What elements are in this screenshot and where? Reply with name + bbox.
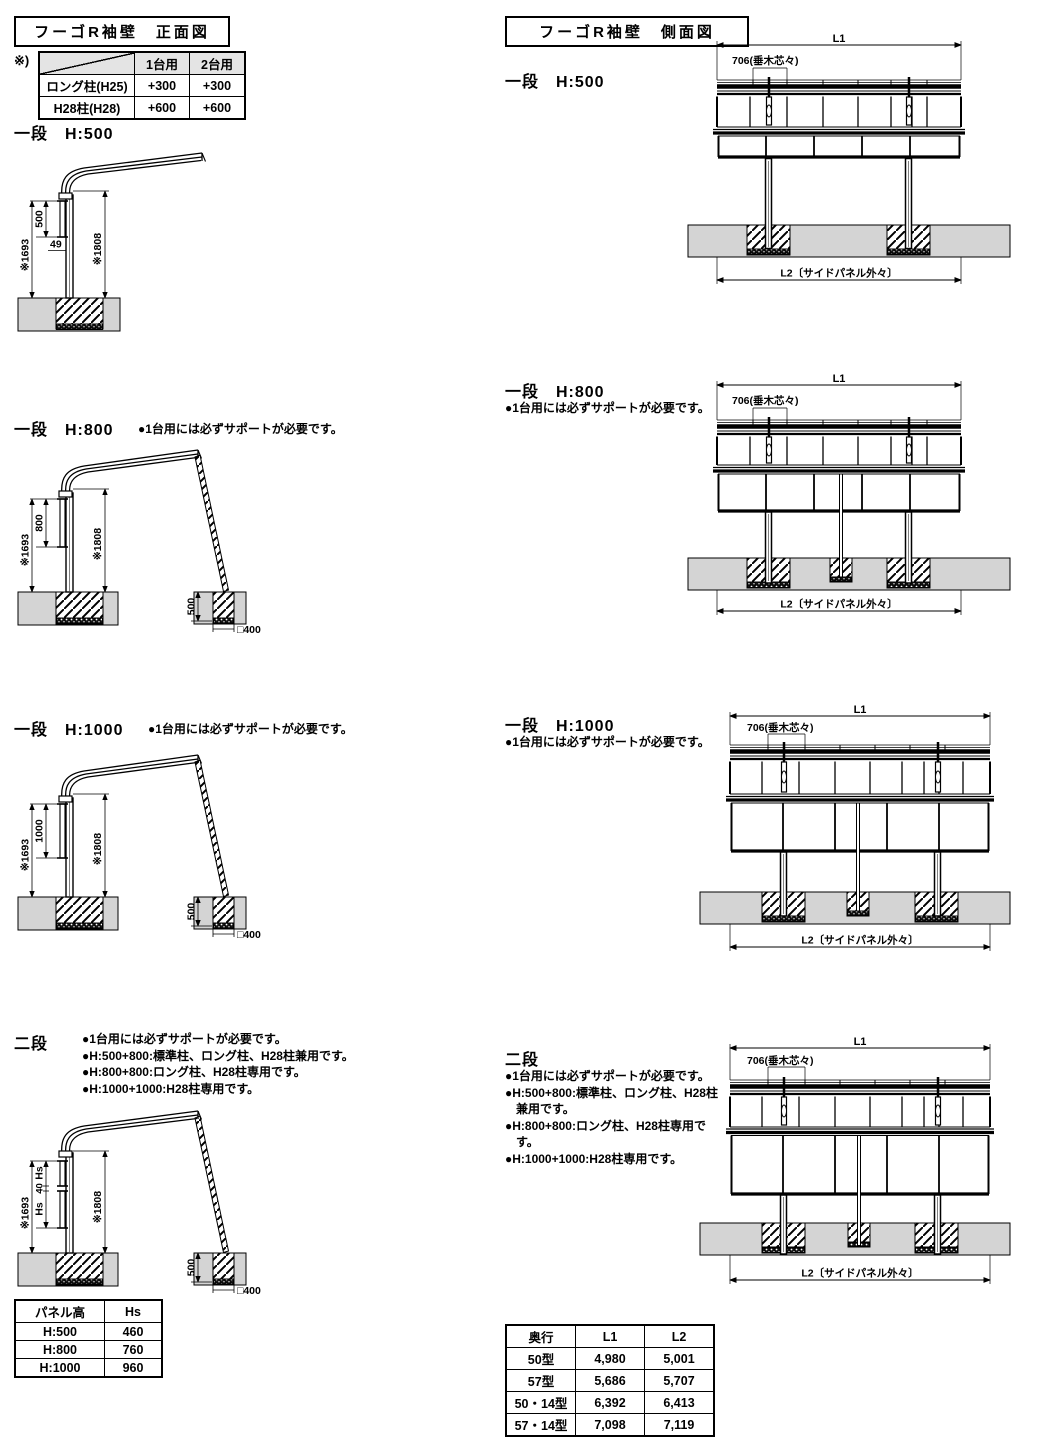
- gravel: [748, 249, 790, 255]
- spec-col-1car: 1台用: [135, 52, 190, 75]
- roof: [62, 1111, 202, 1155]
- gravel: [916, 916, 958, 922]
- gravel: [763, 916, 805, 922]
- side-panel-band: [718, 136, 960, 157]
- table-row: 50型 4,980 5,001: [506, 1348, 714, 1370]
- gravel: [214, 1279, 234, 1285]
- foundation-hatch: [56, 298, 103, 324]
- spec-cell: +300: [190, 75, 246, 97]
- gravel: [57, 1279, 103, 1285]
- spec-diagonal-cell: [39, 52, 135, 75]
- depth-size-table: 奥行 L1 L2 50型 4,980 5,001 57型 5,686 5,707…: [505, 1324, 715, 1437]
- side-h500-heading: 一段 H:500: [505, 68, 605, 92]
- rafter-pitch-dimension: 706(垂木芯々): [732, 54, 799, 80]
- side-view-h800-diagram: L1 706(垂木芯々): [680, 375, 1044, 627]
- note-line: ●H:800+800:ロング柱、H28柱専用です。: [82, 1064, 354, 1081]
- spec-col-2car: 2台用: [190, 52, 246, 75]
- panel-height-table: パネル高 Hs H:500 460 H:800 760 H:1000 960: [14, 1299, 163, 1378]
- roof-band: [717, 417, 961, 437]
- cell: 760: [105, 1341, 163, 1359]
- side-2dan-heading: 二段: [505, 1046, 539, 1070]
- roof-frame-band: [717, 97, 961, 128]
- dim-1693: ※1693: [20, 839, 32, 871]
- side-view-h500-diagram: L1 706(垂木芯々): [680, 33, 1044, 303]
- note-line: ●H:1000+1000:H28柱専用です。: [82, 1081, 354, 1098]
- dim-1808: ※1808: [92, 1191, 104, 1223]
- ground: [688, 558, 1010, 590]
- gravel: [57, 618, 103, 624]
- cell: 4,980: [576, 1348, 645, 1370]
- cell: 6,392: [576, 1392, 645, 1414]
- gravel: [848, 911, 869, 916]
- cell: 57・14型: [506, 1414, 576, 1437]
- note-line: ●H:500+800:標準柱、ロング柱、H28柱兼用です。: [82, 1048, 354, 1065]
- dim-40: 40: [35, 1183, 46, 1194]
- front-2dan-heading: 二段: [14, 1030, 48, 1054]
- front-h800-note: ●1台用には必ずサポートが必要です。: [138, 420, 343, 437]
- gravel: [57, 324, 103, 330]
- dim-706: 706(垂木芯々): [732, 394, 799, 407]
- cell: 50・14型: [506, 1392, 576, 1414]
- catalog-page: フーゴR袖壁 正面図 ※) 1台用 2台用 ロング柱(H25) +300 +30…: [0, 0, 1044, 1450]
- ground: [700, 892, 1010, 924]
- gravel: [57, 923, 103, 929]
- dim-footing-400: □400: [237, 624, 261, 636]
- cell: H:500: [15, 1323, 105, 1341]
- cell: 57型: [506, 1370, 576, 1392]
- beam: [726, 1129, 994, 1133]
- dim-706: 706(垂木芯々): [747, 721, 814, 734]
- table-row: H:1000 960: [15, 1359, 162, 1378]
- roof-band: [717, 77, 961, 97]
- dim-hs-upper: Hs: [34, 1166, 46, 1180]
- foundation-hatch: [56, 592, 103, 618]
- rafter-pitch-dimension: 706(垂木芯々): [732, 394, 799, 420]
- roof-frame-band: [717, 437, 961, 466]
- dim-footing-400: □400: [237, 929, 261, 941]
- cell: 960: [105, 1359, 163, 1378]
- l2-dimension: L2〔サイドパネル外々〕: [730, 924, 990, 951]
- rafter-pitch-dimension: 706(垂木芯々): [747, 1054, 814, 1080]
- dim-49: 49: [50, 239, 62, 251]
- dim-panel-1000: 1000: [34, 819, 46, 843]
- cell: 5,001: [645, 1348, 715, 1370]
- dim-depth-500: 500: [186, 903, 198, 921]
- table-row: 50・14型 6,392 6,413: [506, 1392, 714, 1414]
- front-view-title: フーゴR袖壁 正面図: [14, 16, 230, 47]
- dim-panel-800: 800: [34, 514, 46, 532]
- dim-1693: ※1693: [20, 534, 32, 566]
- dim-706: 706(垂木芯々): [747, 1054, 814, 1067]
- cell: 50型: [506, 1348, 576, 1370]
- roof-band: [730, 1077, 990, 1097]
- support-post: [858, 1136, 861, 1246]
- cell: H:1000: [15, 1359, 105, 1378]
- support-foundation-hatch: [213, 1253, 234, 1279]
- spec-row-h28-label: H28柱(H28): [39, 97, 135, 120]
- spec-row-long-label: ロング柱(H25): [39, 75, 135, 97]
- l1-col-header: L1: [576, 1325, 645, 1348]
- support-foundation-hatch: [213, 592, 234, 618]
- beam: [713, 130, 965, 134]
- side-view-h1000-diagram: L1 706(垂木芯々): [680, 700, 1044, 958]
- dim-l1: L1: [833, 33, 846, 45]
- cell: 7,119: [645, 1414, 715, 1437]
- spec-cell: +600: [135, 97, 190, 120]
- foundation-hatch: [56, 1253, 103, 1279]
- dim-l2: L2〔サイドパネル外々〕: [780, 598, 897, 611]
- front-h1000-heading: 一段 H:1000: [14, 716, 123, 740]
- ground: [18, 298, 120, 331]
- panel-bracket: [59, 1151, 72, 1157]
- front-h1000-note: ●1台用には必ずサポートが必要です。: [148, 720, 353, 737]
- upper-tier-band: [730, 1097, 990, 1128]
- dim-l1: L1: [854, 1036, 867, 1048]
- column-spec-table: 1台用 2台用 ロング柱(H25) +300 +300 H28柱(H28) +6…: [38, 51, 246, 120]
- gravel: [214, 618, 234, 624]
- front-2dan-notes: ●1台用には必ずサポートが必要です。 ●H:500+800:標準柱、ロング柱、H…: [82, 1031, 354, 1097]
- support-foundation-hatch: [213, 897, 234, 923]
- front-view-h800-diagram: ※1693 800 ※1808 500 □400: [10, 438, 300, 668]
- note-line: ●1台用には必ずサポートが必要です。: [82, 1031, 354, 1048]
- roof: [62, 755, 202, 800]
- roof-frame-band: [730, 762, 990, 795]
- cell: 6,413: [645, 1392, 715, 1414]
- l2-dimension: L2〔サイドパネル外々〕: [730, 1255, 990, 1284]
- dim-depth-500: 500: [186, 598, 198, 616]
- dim-1693: ※1693: [20, 1197, 32, 1229]
- panel-table-col-height: パネル高: [15, 1300, 105, 1323]
- dim-footing-400: □400: [237, 1285, 261, 1297]
- panel-bracket: [59, 491, 72, 497]
- table-row: ロング柱(H25) +300 +300: [39, 75, 245, 97]
- l2-col-header: L2: [645, 1325, 715, 1348]
- support-leg: [195, 455, 229, 592]
- dim-1808: ※1808: [92, 528, 104, 560]
- l2-dimension: L2〔サイドパネル外々〕: [717, 590, 961, 615]
- table-row: H:500 460: [15, 1323, 162, 1341]
- l2-dimension: L2〔サイドパネル外々〕: [717, 257, 961, 284]
- beam: [713, 468, 965, 472]
- support-leg: [195, 1116, 229, 1253]
- support-post: [857, 803, 860, 911]
- depth-col-header: 奥行: [506, 1325, 576, 1348]
- spec-cell: +600: [190, 97, 246, 120]
- side-view-2dan-diagram: L1 706(垂木芯々): [680, 1038, 1044, 1290]
- roof: [62, 450, 202, 495]
- gravel: [888, 249, 930, 255]
- front-view-h500-diagram: ※1693 500 49 ※1808: [10, 143, 260, 348]
- table-row: H:800 760: [15, 1341, 162, 1359]
- table-row: 57・14型 7,098 7,119: [506, 1414, 714, 1437]
- rafter-pitch-dimension: 706(垂木芯々): [747, 721, 814, 745]
- cell: 7,098: [576, 1414, 645, 1437]
- roof: [62, 153, 206, 197]
- ground: [688, 225, 1010, 257]
- front-view-h1000-diagram: ※1693 1000 ※1808 500 □400: [10, 743, 300, 973]
- dim-1808: ※1808: [92, 233, 104, 265]
- dim-1693: ※1693: [20, 239, 32, 271]
- dim-l2: L2〔サイドパネル外々〕: [801, 934, 918, 947]
- front-h500-heading: 一段 H:500: [14, 120, 114, 144]
- dim-l1: L1: [854, 704, 867, 716]
- spec-cell: +300: [135, 75, 190, 97]
- dim-l2: L2〔サイドパネル外々〕: [780, 267, 897, 280]
- dim-depth-500: 500: [186, 1259, 198, 1277]
- panel-table-col-hs: Hs: [105, 1300, 163, 1323]
- panel-bracket: [59, 193, 72, 199]
- dim-hs-lower: Hs: [34, 1202, 46, 1216]
- spec-table-note-mark: ※): [14, 53, 29, 69]
- foundation-hatch: [56, 897, 103, 923]
- gravel: [214, 923, 234, 929]
- ground: [18, 592, 246, 625]
- front-h800-heading: 一段 H:800: [14, 416, 114, 440]
- beam: [726, 797, 994, 801]
- dim-1808: ※1808: [92, 833, 104, 865]
- gravel: [831, 577, 852, 582]
- cell: 460: [105, 1323, 163, 1341]
- support-post: [840, 474, 843, 577]
- ground: [18, 897, 246, 930]
- table-row: H28柱(H28) +600 +600: [39, 97, 245, 120]
- dim-l1: L1: [833, 373, 846, 385]
- panel-bracket: [59, 796, 72, 802]
- support-leg: [195, 760, 229, 897]
- dim-panel-500: 500: [34, 210, 46, 228]
- dim-l2: L2〔サイドパネル外々〕: [801, 1267, 918, 1280]
- cell: 5,707: [645, 1370, 715, 1392]
- ground: [700, 1223, 1010, 1255]
- ground: [18, 1253, 246, 1286]
- dim-706: 706(垂木芯々): [732, 54, 799, 67]
- cell: H:800: [15, 1341, 105, 1359]
- table-row: 57型 5,686 5,707: [506, 1370, 714, 1392]
- cell: 5,686: [576, 1370, 645, 1392]
- roof-band: [730, 742, 990, 762]
